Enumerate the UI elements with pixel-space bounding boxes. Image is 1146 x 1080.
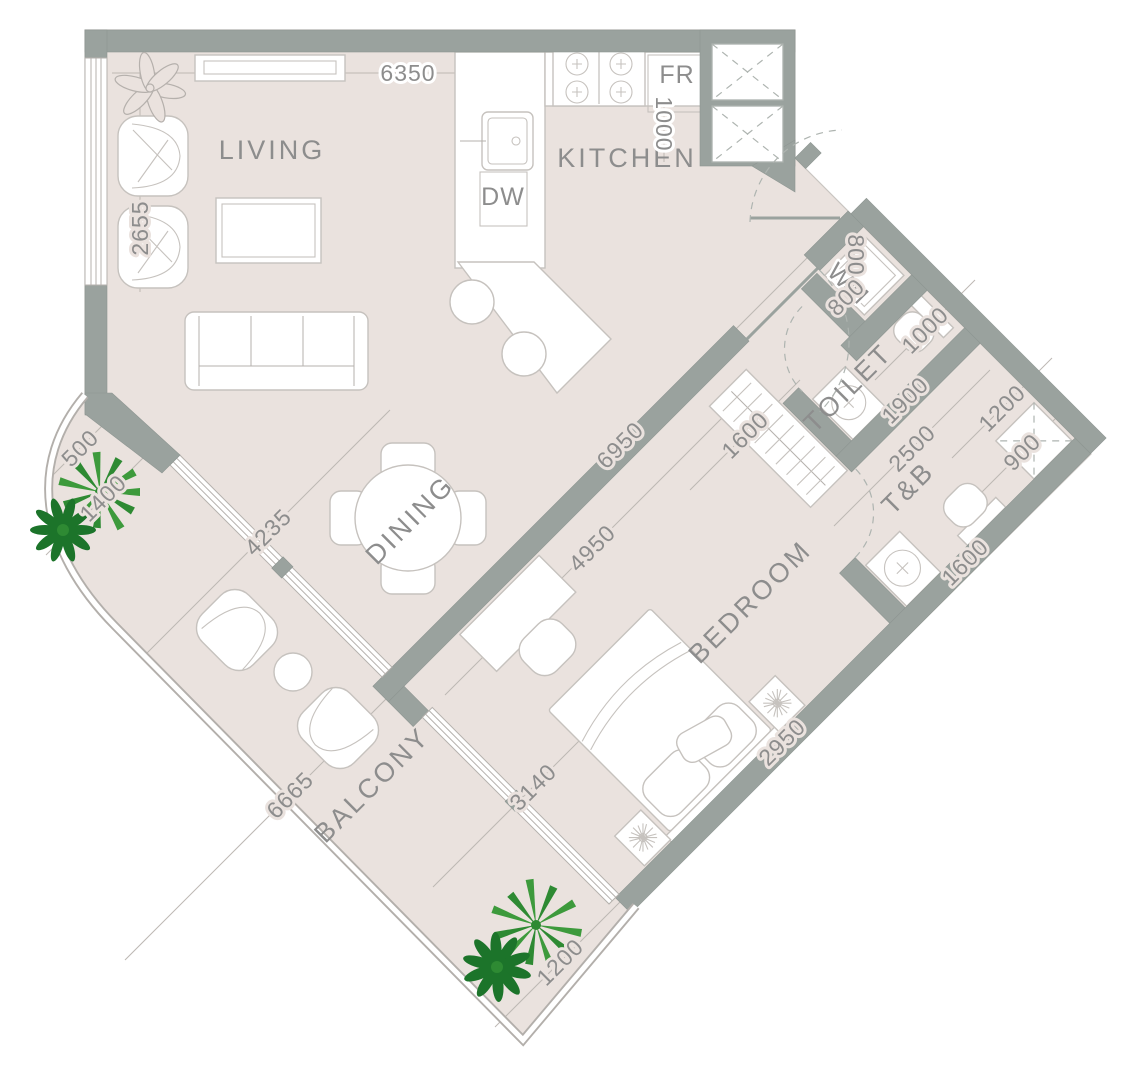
dim-top-width: 6350 bbox=[380, 60, 435, 86]
floor-plan-page: LIVING KITCHEN DINING BEDROOM TOILET T&B… bbox=[0, 0, 1146, 1080]
dim-wm-a: 800 bbox=[843, 234, 869, 275]
dim-living-side: 2655 bbox=[127, 200, 153, 255]
balcony-table bbox=[274, 653, 312, 691]
appliance-label-dw: DW bbox=[481, 183, 525, 211]
left-window bbox=[85, 58, 107, 285]
floor bbox=[49, 30, 1091, 1040]
stove bbox=[553, 48, 645, 106]
sofa bbox=[185, 312, 368, 390]
floor-plan: LIVING KITCHEN DINING BEDROOM TOILET T&B… bbox=[0, 0, 1146, 1080]
coffee-table bbox=[216, 198, 321, 263]
appliance-label-fr: FR bbox=[659, 61, 694, 89]
dim-fridge-niche: 1000 bbox=[651, 96, 677, 151]
stool bbox=[502, 332, 546, 376]
stool bbox=[450, 280, 494, 324]
armchair bbox=[118, 116, 188, 196]
room-label-living: LIVING bbox=[219, 135, 326, 165]
tv-console bbox=[195, 55, 345, 81]
